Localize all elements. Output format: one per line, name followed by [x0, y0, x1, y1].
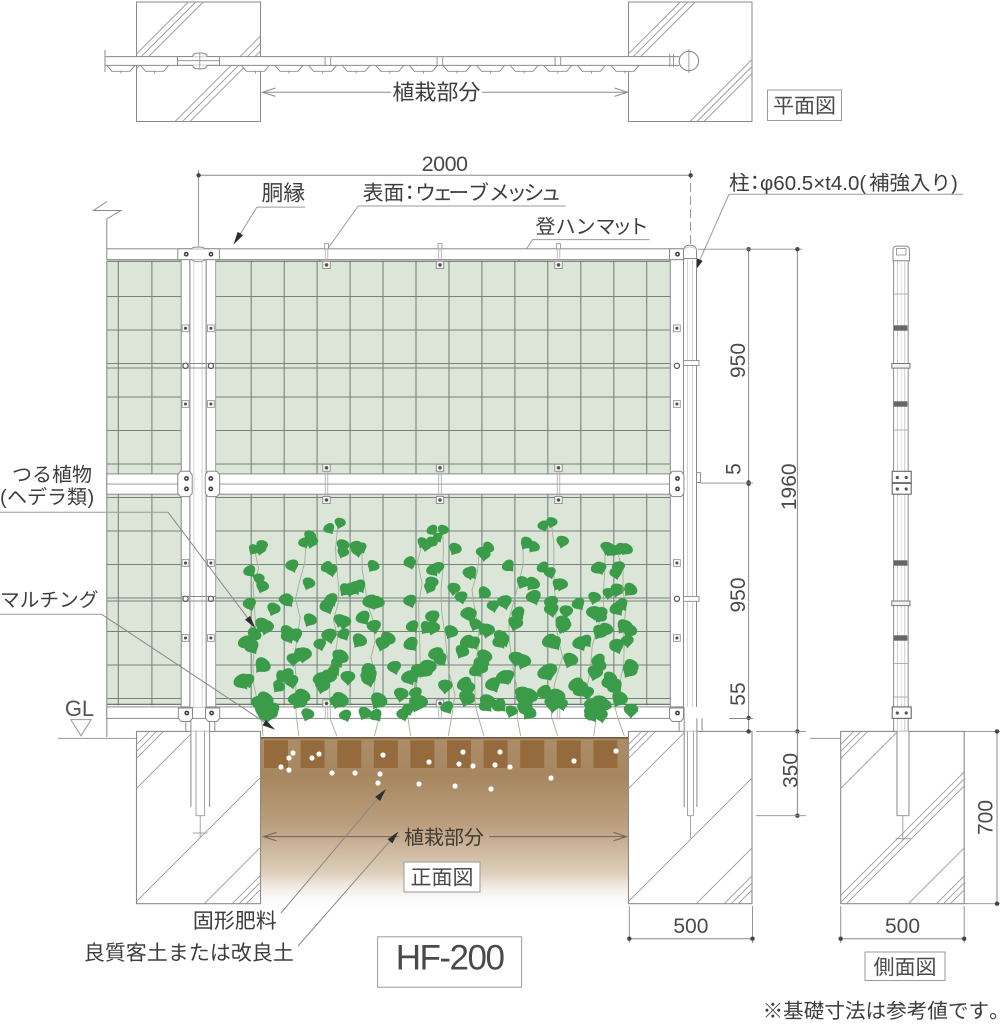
svg-text:): ) [88, 487, 95, 509]
svg-text:1960: 1960 [778, 463, 801, 510]
svg-text:5: 5 [723, 463, 746, 475]
svg-text:500: 500 [885, 915, 920, 938]
svg-text:700: 700 [975, 800, 998, 835]
svg-text:(: ( [0, 487, 7, 509]
svg-text:55: 55 [727, 682, 750, 705]
svg-text:2000: 2000 [422, 152, 468, 176]
svg-text:350: 350 [780, 753, 803, 788]
svg-text:HF-200: HF-200 [396, 939, 505, 978]
svg-text:): ) [951, 172, 958, 195]
svg-text:500: 500 [673, 915, 708, 938]
svg-text:950: 950 [727, 577, 750, 612]
svg-text:GL: GL [65, 696, 94, 721]
svg-text:950: 950 [727, 343, 750, 378]
svg-text:φ60.5×t4.0(: φ60.5×t4.0( [760, 172, 866, 195]
